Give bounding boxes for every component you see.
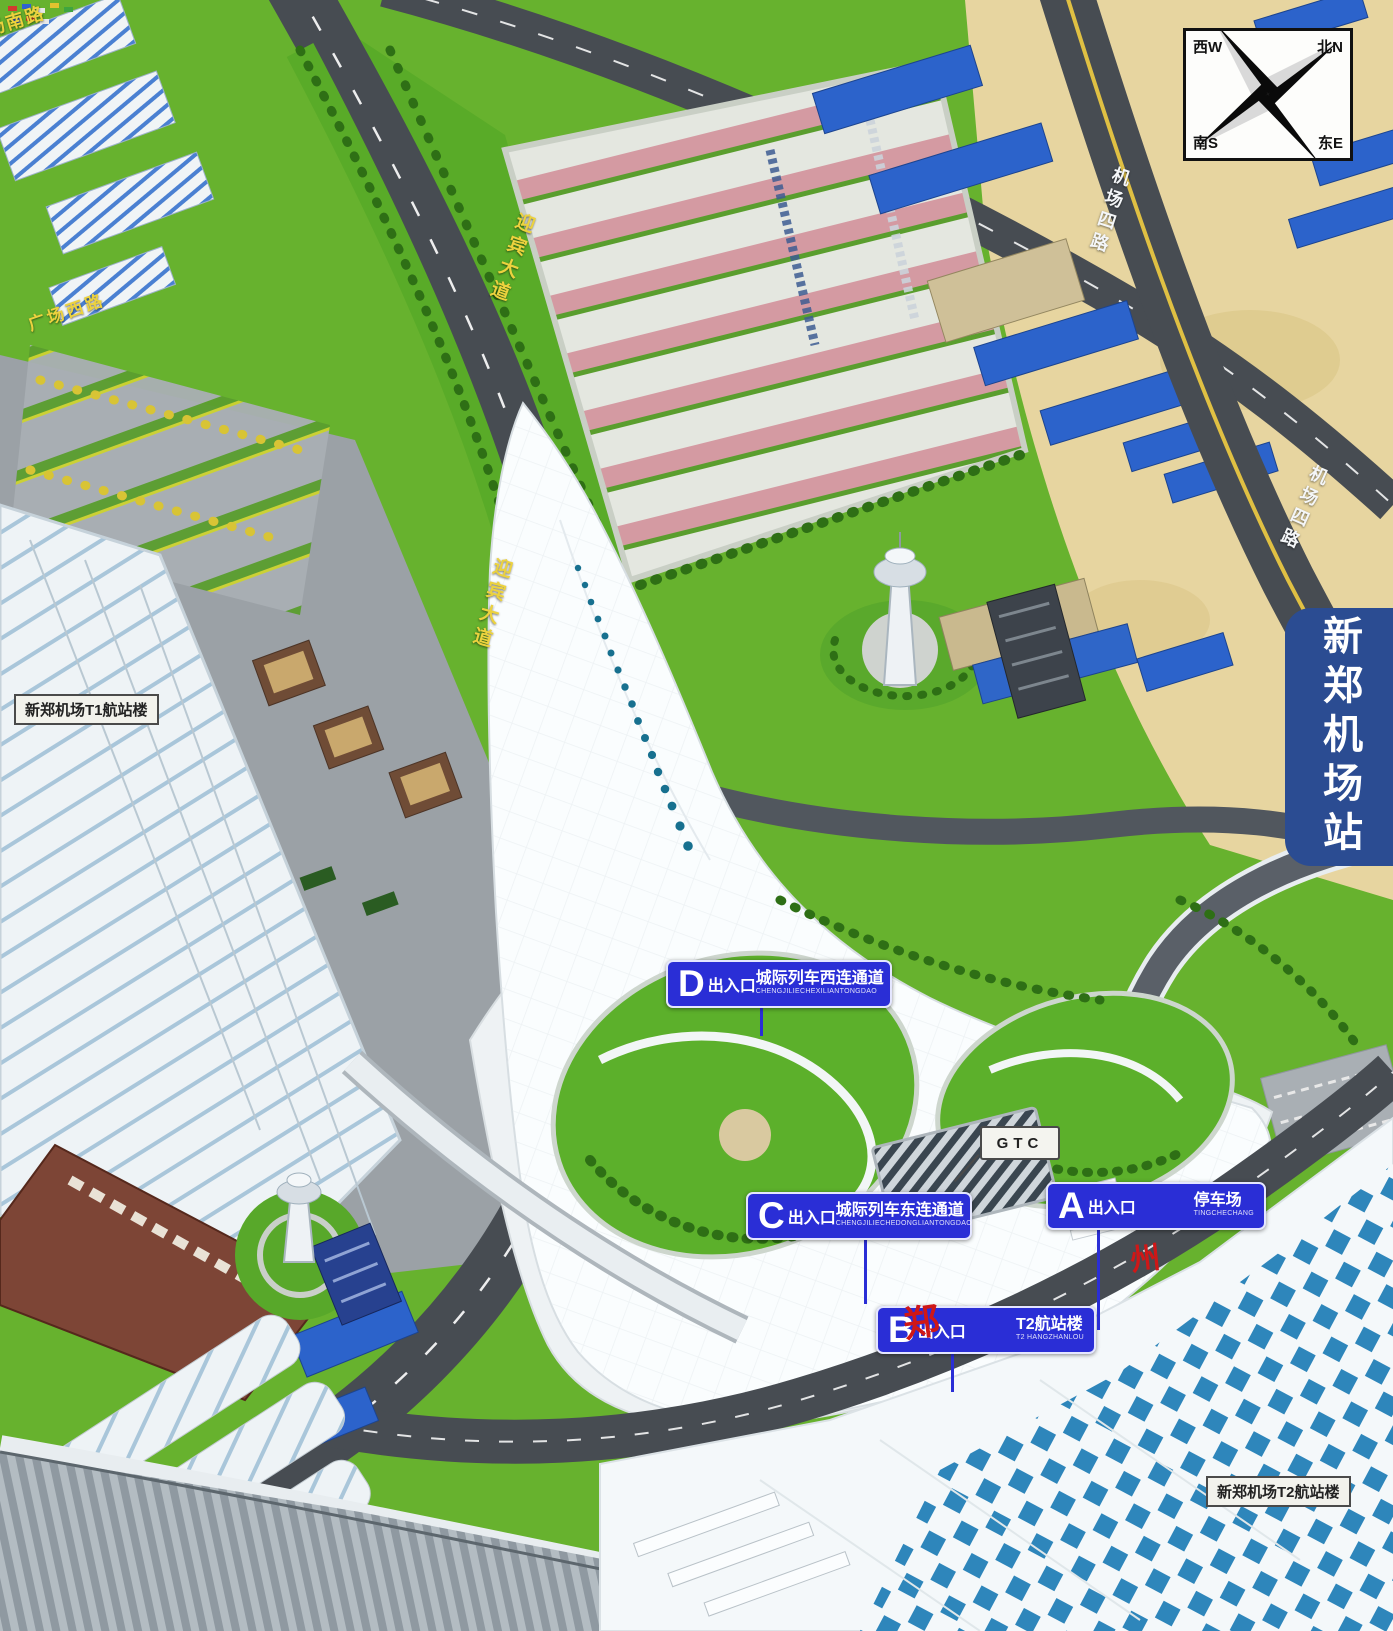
red-seal-zheng: 郑 [900, 1292, 943, 1349]
entrance-dest: 城际列车东连通道 [836, 1202, 972, 1220]
compass-south: 南S [1193, 132, 1218, 153]
entrance-pinyin: CHENGJILIECHEXILIANTONGDAO [756, 988, 884, 996]
gtc-text: GTC [997, 1135, 1044, 1152]
entrance-label-d: D 出入口 城际列车西连通道 CHENGJILIECHEXILIANTONGDA… [666, 960, 892, 1008]
entrance-letter: C [758, 1197, 785, 1234]
entrance-letter: A [1058, 1187, 1085, 1224]
compass-east: 东E [1318, 132, 1343, 153]
leader-line-c [864, 1238, 867, 1304]
entrance-dest: T2航站楼 [1016, 1316, 1084, 1334]
station-name: 新郑机场站 [1319, 615, 1359, 860]
entrance-suffix: 出入口 [1088, 1194, 1136, 1225]
airport-map-canvas[interactable]: 西W 北N 南S 东E 新郑机场站 新郑机场T1航站楼 新郑机场T2航站楼 广场… [0, 0, 1393, 1631]
entrance-pinyin: CHENGJILIECHEDONGLIANTONGDAO [836, 1220, 972, 1228]
entrance-suffix: 出入口 [788, 1204, 836, 1235]
entrance-dest: 城际列车西连通道 [756, 970, 884, 988]
compass-west: 西W [1193, 36, 1222, 57]
entrance-label-a: A 出入口 停车场 TINGCHECHANG [1046, 1182, 1266, 1230]
station-name-banner: 新郑机场站 [1285, 608, 1393, 866]
entrance-pinyin: TINGCHECHANG [1194, 1210, 1254, 1218]
entrance-pinyin: T2 HANGZHANLOU [1016, 1334, 1084, 1342]
leader-line-b [951, 1352, 954, 1392]
entrance-dest: 停车场 [1194, 1192, 1254, 1210]
entrance-letter: D [678, 965, 705, 1002]
leader-line-d [760, 1006, 763, 1036]
t2-terminal-label: 新郑机场T2航站楼 [1206, 1476, 1351, 1507]
compass-rose: 西W 北N 南S 东E [1183, 28, 1353, 161]
entrance-label-c: C 出入口 城际列车东连通道 CHENGJILIECHEDONGLIANTONG… [746, 1192, 972, 1240]
entrance-suffix: 出入口 [708, 972, 756, 1003]
compass-north: 北N [1317, 36, 1343, 57]
leader-line-a [1097, 1228, 1100, 1330]
map-illustration [0, 0, 1393, 1631]
gtc-label: GTC [980, 1126, 1060, 1160]
red-seal-zhou: 州 [1128, 1233, 1162, 1280]
t1-terminal-label: 新郑机场T1航站楼 [14, 694, 159, 725]
